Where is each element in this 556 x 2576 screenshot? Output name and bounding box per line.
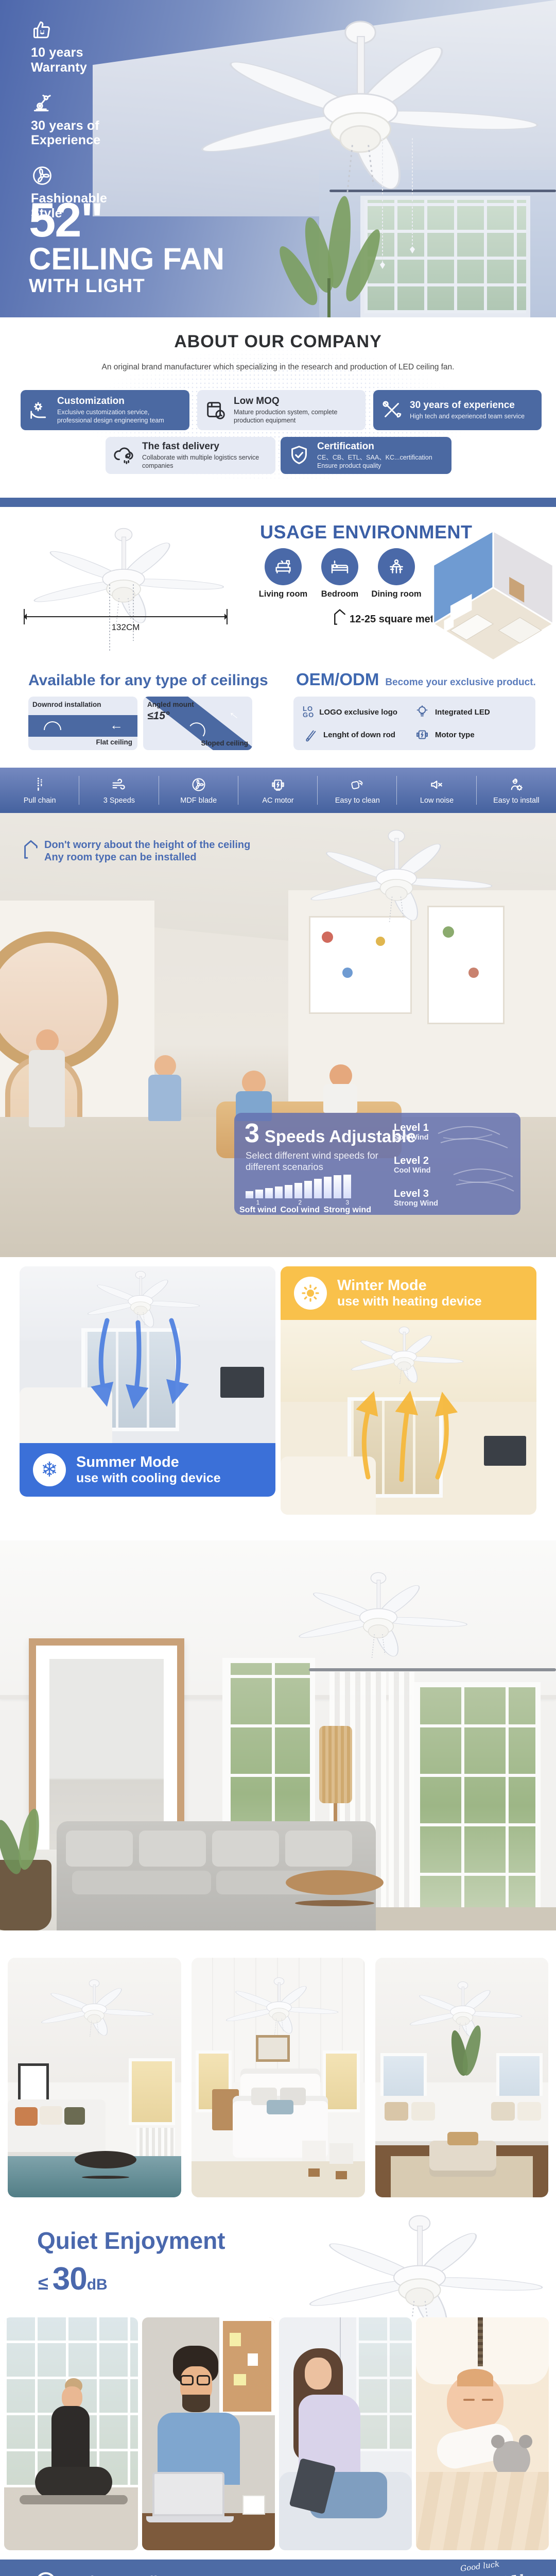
oem-heading: OEM/ODM: [296, 670, 379, 689]
teddy-ear: [491, 2435, 505, 2448]
oem-item-downrod: Lenght of down rod: [303, 723, 414, 746]
scale-num: 1: [239, 1199, 276, 1206]
scale-item: 1 Soft wind: [239, 1199, 276, 1215]
feature-card-title: The fast delivery: [142, 441, 269, 452]
speed-level-1: Level 1 Soft Wind: [394, 1122, 429, 1142]
oem-options-card: LO GO LOGO exclusive logo Integrated LED…: [293, 697, 535, 750]
scene-window: [129, 2058, 175, 2125]
room-label: Dining room: [370, 589, 423, 599]
note-line: Don't worry about the height of the ceil…: [44, 839, 250, 851]
laptop-screen: [152, 2472, 224, 2516]
fan-icon: [31, 164, 54, 187]
feature-card-title: Customization: [57, 396, 183, 407]
scene-child: [154, 1055, 176, 1077]
scene-window: [323, 2050, 360, 2112]
hero-section: 10 years Warranty 30 years of Experience: [0, 0, 556, 317]
shield-check-icon: [287, 444, 311, 467]
product-title-line2: WITH LIGHT: [29, 275, 224, 297]
room-label: Living room: [256, 589, 310, 599]
feature-card-desc: Mature production system, complete produ…: [234, 409, 359, 425]
feature-card-text: Low MOQ Mature production system, comple…: [234, 396, 359, 425]
feature-label: Pull chain: [24, 796, 56, 805]
gallery-photo-bedroom: [192, 1958, 365, 2197]
photo-sleeping-baby: [416, 2317, 549, 2550]
round-coffee-table: [75, 2151, 136, 2168]
ceiling-fan-in-classroom: [288, 821, 505, 940]
product-size: 52": [29, 197, 224, 243]
installer-icon: [508, 776, 525, 793]
pillow: [411, 2102, 435, 2121]
fan-width-dimension-line: [25, 616, 227, 617]
noise-level: ≤ 30 dB: [38, 2261, 108, 2297]
feature-card-desc: Exclusive customization service, profess…: [57, 409, 183, 425]
ceiling-card-caption: Sloped ceiling: [201, 739, 248, 747]
ceiling-height-note: Don't worry about the height of the ceil…: [22, 839, 250, 863]
usage-room-living: Living room: [256, 548, 310, 599]
speeds-number: 3: [245, 1118, 259, 1149]
level-name: Level 1: [394, 1122, 429, 1133]
sticky-note: [234, 2374, 246, 2385]
feature-low-noise: Low noise: [397, 768, 476, 813]
blanket: [416, 2472, 549, 2550]
mode-title: Summer Mode: [76, 1454, 221, 1471]
winter-mode-text: Winter Mode use with heating device: [337, 1277, 482, 1309]
summer-mode-text: Summer Mode use with cooling device: [76, 1454, 221, 1486]
oem-item-label: Lenght of down rod: [323, 731, 395, 739]
sun-icon: [300, 1283, 321, 1303]
house-corner-icon: [22, 839, 40, 859]
fan-pull-chain: [412, 138, 413, 246]
logo-text-icon: LO GO: [303, 706, 314, 719]
fan-pull-chain: [382, 138, 383, 262]
winter-room-photo: [281, 1320, 536, 1515]
note-text: Don't worry about the height of the ceil…: [44, 839, 250, 863]
feature-card-desc: Collaborate with multiple logistics serv…: [142, 454, 269, 470]
room-circle: [378, 548, 415, 585]
mode-subtitle: use with cooling device: [76, 1471, 221, 1486]
coverage-area: 12-25 square meter: [332, 608, 443, 625]
feature-3-speeds: 3 Speeds: [79, 768, 159, 813]
thumbs-up-icon: [31, 19, 54, 41]
speeds-subtitle: Select different wind speeds for differe…: [246, 1150, 385, 1173]
pillow: [64, 2107, 85, 2125]
baby-hair: [457, 2369, 493, 2386]
room-label: Bedroom: [313, 589, 367, 599]
closed-eye: [463, 2399, 475, 2401]
feature-card-customization: Customization Exclusive customization se…: [21, 390, 189, 430]
gallery-photo-sectional: [375, 1958, 548, 2197]
feature-card-title: Certification: [317, 441, 445, 452]
pillow: [15, 2107, 38, 2126]
left-arrow-icon: ←: [110, 717, 123, 733]
scene-child-shirt: [323, 1084, 357, 1113]
gallery-photo-living: [8, 1958, 181, 2197]
product-title-line1: CEILING FAN: [29, 243, 224, 275]
snowflake-badge: ❄: [33, 1453, 66, 1486]
lifestyle-gallery-section: [0, 2317, 556, 2554]
feature-easy-clean: Easy to clean: [318, 768, 397, 813]
speeds-title-text: Speeds Adjustable: [265, 1127, 416, 1146]
badge-line: Experience: [31, 133, 107, 148]
pillow: [517, 2102, 541, 2121]
scene-tv: [220, 1367, 264, 1398]
usage-room-dining: Dining room: [370, 548, 423, 599]
feature-label: AC motor: [262, 796, 293, 805]
dining-table-icon: [386, 556, 407, 577]
feature-card-text: Customization Exclusive customization se…: [57, 396, 183, 425]
headset-icon: [32, 2567, 60, 2576]
robot-arm-icon: [31, 92, 54, 114]
usage-environment-section: 132CM USAGE ENVIRONMENT Living room Bedr…: [0, 507, 556, 670]
badge-line: 10 years: [31, 45, 107, 60]
fan-pull-chain: [478, 2317, 483, 2366]
closed-eye: [482, 2399, 493, 2401]
tufted-ottoman: [429, 2141, 496, 2177]
snowflake-icon: ❄: [41, 1460, 58, 1480]
feature-icon-bar: Pull chain 3 Speeds MDF blade AC motor: [0, 768, 556, 813]
speeds-adjustable-panel: 3 Speeds Adjustable Select different win…: [234, 1113, 520, 1215]
scale-label: Soft wind: [239, 1206, 276, 1215]
production-box-icon: [204, 398, 228, 422]
mode-subtitle: use with heating device: [337, 1294, 482, 1309]
scale-label: Strong wind: [324, 1206, 371, 1215]
photo-man-laptop: [142, 2317, 275, 2550]
oem-item-label: LOGO exclusive logo: [319, 708, 397, 717]
scale-item: 3 Strong wind: [324, 1199, 371, 1215]
feature-card-experience: 30 years of experience High tech and exp…: [373, 390, 542, 430]
scene-french-doors: [412, 1682, 541, 1930]
summer-mode-bar: ❄ Summer Mode use with cooling device: [20, 1443, 275, 1497]
feature-card-certification: Certification CE、CB、ETL、SAA、KC...certifi…: [281, 437, 451, 474]
room-circle: [265, 548, 302, 585]
stool: [302, 2141, 326, 2161]
oem-item-motor: Motor type: [414, 723, 526, 746]
oem-subheading: Become your exclusive product.: [385, 677, 536, 688]
noise-unit: dB: [87, 2276, 108, 2294]
hero-badge-list: 10 years Warranty 30 years of Experience: [31, 19, 107, 221]
pillow: [40, 2106, 62, 2125]
sofa-cushion: [66, 1831, 133, 1867]
badge-warranty: 10 years Warranty: [31, 19, 107, 75]
feature-card-text: Certification CE、CB、ETL、SAA、KC...certifi…: [317, 441, 445, 470]
stool: [329, 2143, 353, 2164]
pillow: [491, 2102, 515, 2121]
pillow: [385, 2102, 408, 2121]
motor-icon: [414, 727, 430, 742]
feature-card-low-moq: Low MOQ Mature production system, comple…: [197, 390, 366, 430]
sofa-icon: [273, 556, 293, 577]
logo-glyph: GO: [303, 712, 314, 718]
feature-card-title: 30 years of experience: [410, 400, 525, 411]
scene-child-shirt: [148, 1075, 181, 1121]
fan-blade-icon: [190, 776, 207, 793]
note-line: Any room type can be installed: [44, 851, 250, 863]
sun-badge: [294, 1277, 327, 1310]
about-subtitle: An original brand manufacturer which spe…: [0, 363, 556, 372]
feature-mdf-blade: MDF blade: [159, 768, 238, 813]
glasses: [180, 2375, 194, 2385]
basket-tray: [447, 2132, 478, 2145]
scene-adult: [36, 1029, 59, 1052]
ceiling-types-section: Available for any type of ceilings Downr…: [0, 670, 556, 768]
level-wind: Soft Wind: [394, 1133, 429, 1142]
oem-item-label: Motor type: [435, 731, 475, 739]
flat-ceiling-band: ←: [28, 715, 137, 737]
speed-level-2: Level 2 Cool Wind: [394, 1155, 431, 1175]
person-torso: [51, 2406, 90, 2473]
notebook: [242, 2495, 265, 2515]
art-frame: [256, 2035, 290, 2062]
curtain: [389, 1672, 414, 1930]
about-company-section: ABOUT OUR COMPANY An original brand manu…: [0, 317, 556, 498]
level-name: Level 2: [394, 1155, 431, 1166]
feature-card-desc: High tech and experienced team service: [410, 413, 525, 421]
scene-toy: [468, 968, 479, 978]
feature-label: Easy to install: [493, 796, 539, 805]
footer-bar: 24 hours online Send inquiry to get late…: [0, 2560, 556, 2576]
sofa-cushion: [285, 1831, 352, 1867]
room-gallery-section: [0, 1958, 556, 2197]
feature-ac-motor: AC motor: [238, 768, 318, 813]
level-wind: Cool Wind: [394, 1166, 431, 1175]
badge-label: 30 years of Experience: [31, 118, 107, 148]
sofa-seat: [72, 1871, 211, 1894]
bed-icon: [329, 556, 350, 577]
oem-item-label: Integrated LED: [435, 708, 490, 717]
person-crossed-legs: [35, 2467, 112, 2498]
ceiling-card-caption: Flat ceiling: [96, 738, 132, 746]
gear-hand-icon: [27, 398, 51, 422]
pinned-paper: [248, 2353, 258, 2366]
badge-line: 30 years of: [31, 118, 107, 133]
feature-easy-install: Easy to install: [477, 768, 556, 813]
classroom-photo-section: Don't worry about the height of the ceil…: [0, 813, 556, 1257]
ceiling-card-downrod: Downrod installation ← Flat ceiling: [28, 697, 137, 750]
oem-heading-row: OEM/ODM Become your exclusive product.: [296, 670, 536, 689]
fan-product-photo: [281, 2203, 556, 2317]
motor-icon: [270, 776, 286, 793]
delivery-rocket-icon: [112, 444, 136, 467]
ceiling-types-heading: Available for any type of ceilings: [28, 672, 268, 689]
feature-label: MDF blade: [180, 796, 217, 805]
blue-pillow: [267, 2100, 293, 2114]
mode-title: Winter Mode: [337, 1277, 482, 1294]
feature-pull-chain: Pull chain: [0, 768, 79, 813]
fan-canopy-icon: [44, 721, 61, 730]
pull-chain-icon: [31, 776, 48, 793]
noise-value: 30: [53, 2261, 87, 2297]
badge-line: Warranty: [31, 60, 107, 75]
scale-num: 3: [324, 1199, 371, 1206]
clean-wipe-icon: [349, 776, 366, 793]
isometric-room-illustration: [427, 526, 556, 665]
footer-highlight: 24 hours online: [71, 2573, 174, 2576]
speaker-mute-icon: [429, 776, 445, 793]
quiet-heading: Quiet Enjoyment: [37, 2227, 225, 2255]
feature-card-text: The fast delivery Collaborate with multi…: [142, 441, 269, 470]
winter-mode-bar: Winter Mode use with heating device: [281, 1266, 536, 1320]
room-circle: [321, 548, 358, 585]
plant-basket: [0, 1860, 51, 1930]
ceiling-card-title: Downrod installation: [32, 701, 101, 708]
ceiling-card-angled: Angled mount ≤15° ← Sloped ceiling: [143, 697, 252, 750]
photo-woman-reading: [279, 2317, 412, 2550]
lte-symbol: ≤: [38, 2273, 48, 2294]
rattan-lamp: [319, 1726, 352, 1803]
fan-product-photo: [10, 524, 237, 638]
feature-card-delivery: The fast delivery Collaborate with multi…: [106, 437, 275, 474]
coffee-table: [286, 1870, 384, 1895]
person-beard: [182, 2395, 210, 2412]
signature: Good luck Tammy: [438, 2560, 525, 2576]
corkboard: [219, 2317, 275, 2415]
speeds-title: 3 Speeds Adjustable: [245, 1118, 416, 1149]
summer-room-photo: [20, 1266, 275, 1443]
scale-item: 2 Cool wind: [281, 1199, 320, 1215]
ceiling-fan-small: [27, 1967, 161, 2055]
quiet-section: Quiet Enjoyment ≤ 30 dB: [0, 2200, 556, 2317]
section-divider: [0, 498, 556, 507]
scene-window: [356, 2317, 412, 2451]
footer-message: 24 hours online Send inquiry to get late…: [71, 2573, 342, 2576]
bulb-icon: [414, 704, 430, 720]
sofa-cushion: [212, 1831, 279, 1867]
scale-num: 2: [281, 1199, 320, 1206]
ceiling-fan-photo: [278, 1550, 479, 1689]
speed-level-3: Level 3 Strong Wind: [394, 1188, 438, 1208]
sticky-note: [230, 2333, 241, 2346]
wind-icon: [111, 776, 127, 793]
ceiling-card-title: Angled mount: [147, 701, 194, 708]
product-detail-page: 10 years Warranty 30 years of Experience: [0, 0, 556, 2576]
scene-adult-shirt: [29, 1050, 65, 1127]
feature-card-title: Low MOQ: [234, 396, 359, 407]
feature-card-text: 30 years of experience High tech and exp…: [410, 400, 525, 421]
oem-item-logo: LO GO LOGO exclusive logo: [303, 701, 414, 723]
sofa-cushion: [139, 1831, 206, 1867]
beige-rug: [192, 2161, 365, 2197]
hero-title: 52" CEILING FAN WITH LIGHT: [29, 197, 224, 297]
oem-item-led: Integrated LED: [414, 701, 526, 723]
level-wind: Strong Wind: [394, 1199, 438, 1208]
feature-label: Easy to clean: [335, 796, 380, 805]
house-corner-icon: [332, 608, 347, 625]
downrod-icon: [303, 727, 318, 742]
usage-room-bedroom: Bedroom: [313, 548, 367, 599]
summer-mode-card: ❄ Summer Mode use with cooling device: [20, 1266, 275, 1497]
speed-scale-labels: 1 Soft wind 2 Cool wind 3 Strong wind: [239, 1199, 371, 1215]
plant-stem: [327, 278, 331, 317]
level-name: Level 3: [394, 1188, 438, 1199]
tools-icon: [380, 398, 404, 422]
photo-yoga-woman: [4, 2317, 138, 2550]
yoga-mat: [20, 2495, 128, 2504]
cool-airflow-arrows: [76, 1315, 210, 1429]
fan-width-value: 132CM: [25, 622, 227, 633]
about-heading: ABOUT OUR COMPANY: [0, 332, 556, 352]
glasses: [197, 2375, 210, 2385]
badge-experience: 30 years of Experience: [31, 92, 107, 148]
scene-tv: [484, 1436, 526, 1466]
angle-value: ≤15°: [147, 710, 169, 722]
feature-label: Low noise: [420, 796, 454, 805]
feature-card-desc: CE、CB、ETL、SAA、KC...certification Ensure …: [317, 454, 445, 470]
badge-label: 10 years Warranty: [31, 45, 107, 75]
diagonal-arrow-icon: ←: [225, 703, 246, 724]
fan-pull-chain: [109, 584, 110, 651]
winter-mode-card: Winter Mode use with heating device: [281, 1266, 536, 1515]
laptop-base: [146, 2516, 234, 2522]
season-modes-section: ❄ Summer Mode use with cooling device Wi…: [0, 1266, 556, 1520]
warm-airflow-arrows: [340, 1379, 474, 1498]
hero-ceiling-fan-photo: [160, 14, 556, 215]
speed-bar-chart: [246, 1175, 365, 1198]
feature-label: 3 Speeds: [103, 796, 135, 805]
dimension-tick: [227, 609, 228, 624]
teddy-ear: [519, 2435, 532, 2448]
scale-label: Cool wind: [281, 1206, 320, 1215]
scene-toy: [342, 968, 353, 978]
person-head: [305, 2358, 332, 2389]
living-room-photo-section: [0, 1540, 556, 1930]
